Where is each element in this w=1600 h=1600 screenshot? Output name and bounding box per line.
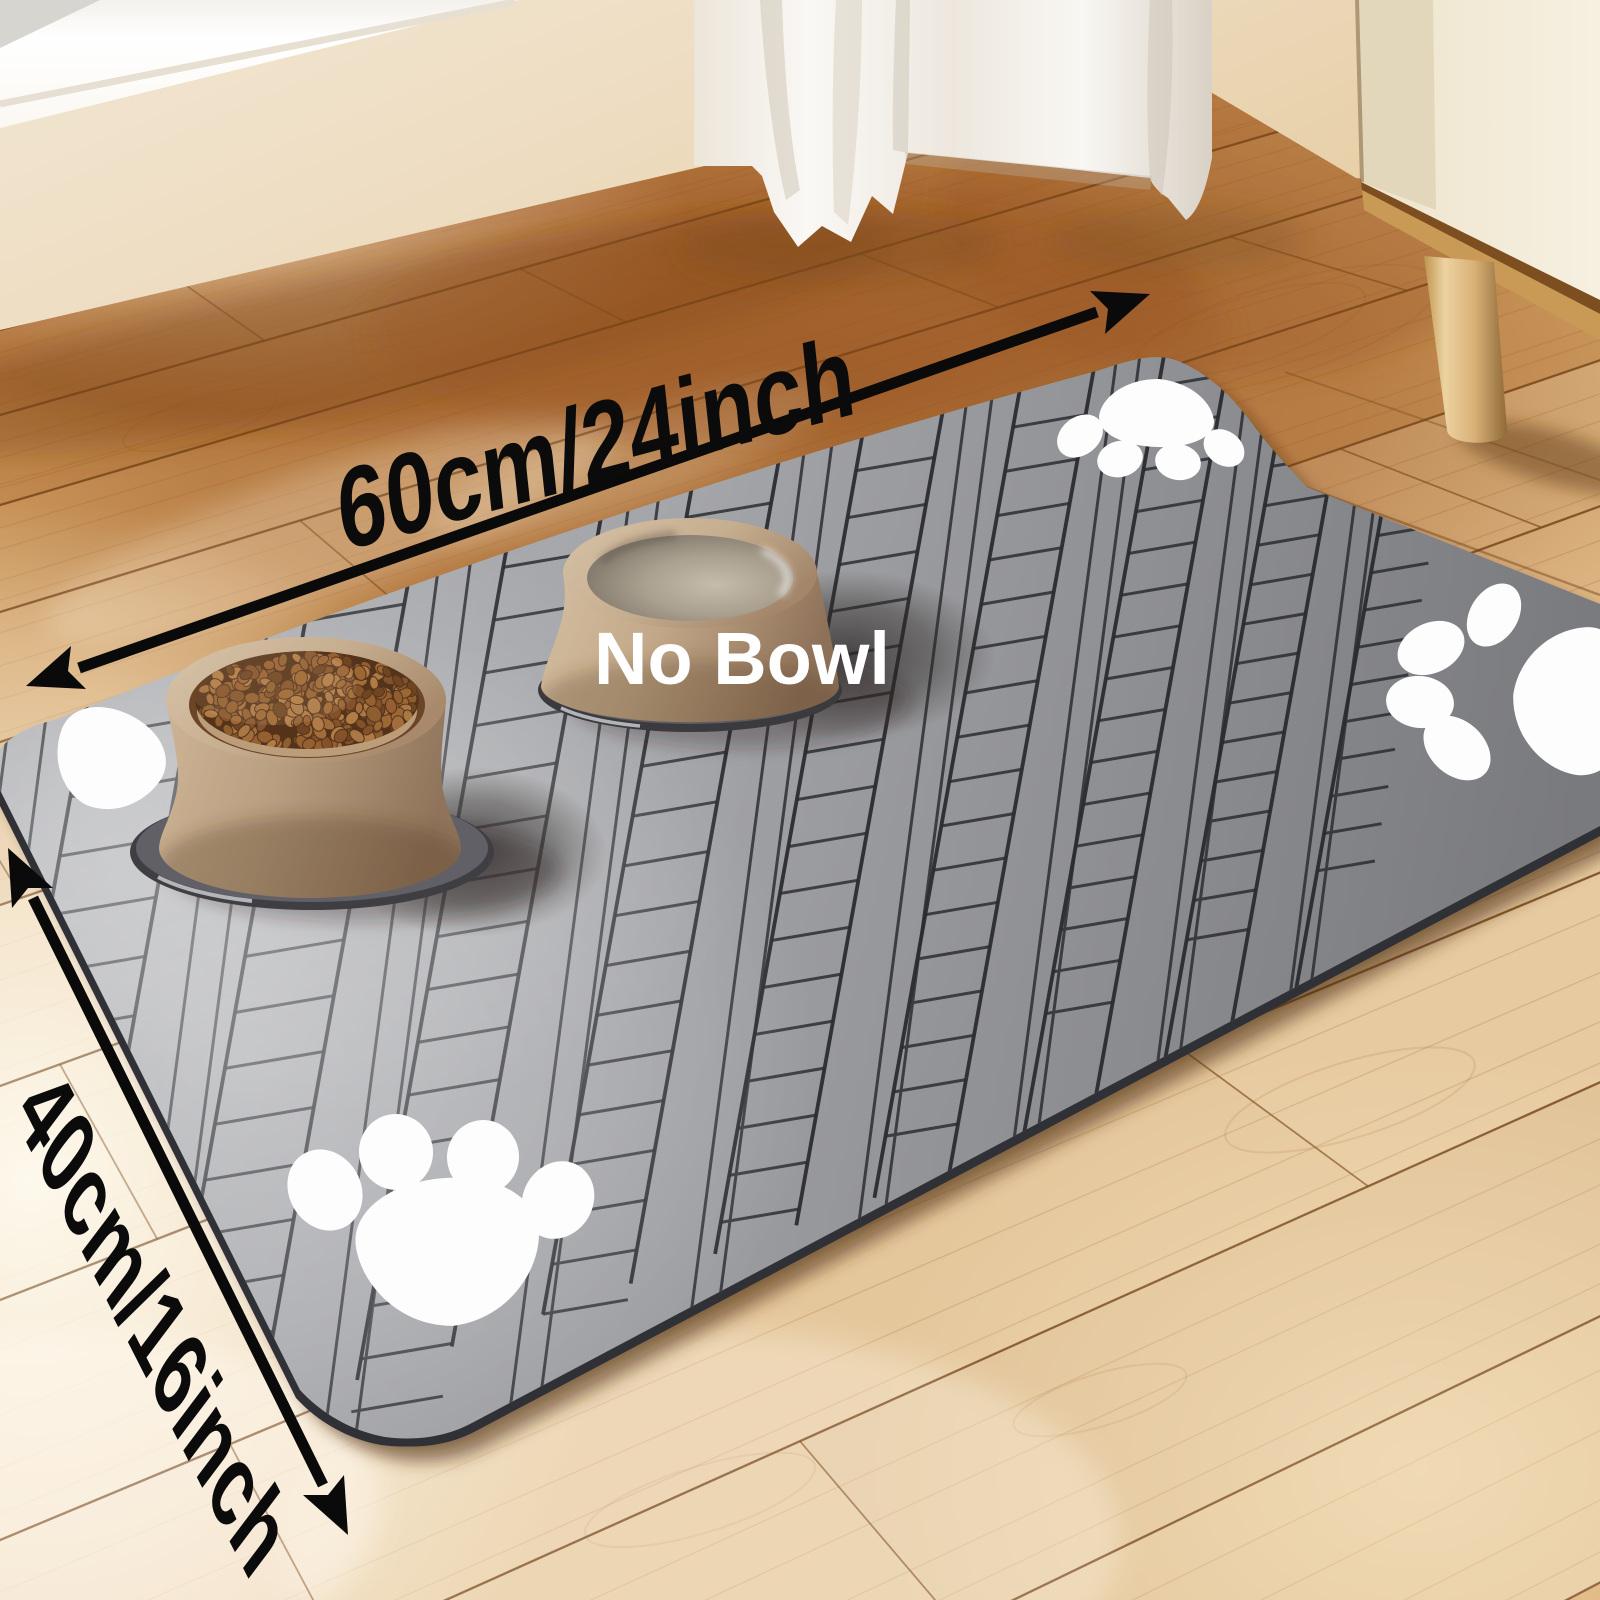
svg-text:No Bowl: No Bowl: [594, 617, 890, 700]
